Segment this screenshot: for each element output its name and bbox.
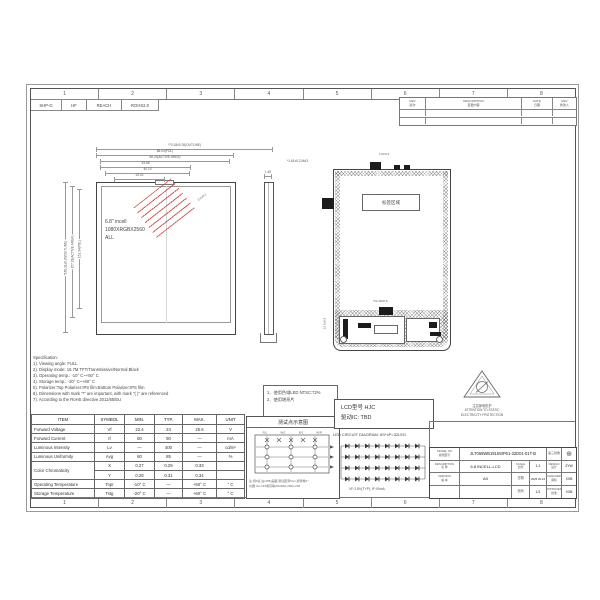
spec-item: Operating Temperature [32, 480, 95, 489]
panel-description-text: 6.8" incell 1080XRGBX2560 ALL [105, 218, 145, 242]
test-point-title: 测试点示意图 [247, 417, 339, 428]
spec-cell: 0.28 [125, 470, 155, 479]
revision-empty-cell [400, 118, 426, 124]
approved-label-cn: 批准 [551, 492, 557, 495]
spec-cell: Y [95, 470, 125, 479]
spec-cell: — [183, 452, 217, 461]
compliance-table: SHP-GHFREACHROHS2.0 [31, 99, 159, 111]
spec-item: Forward Current [32, 434, 95, 443]
fpc-stiffener [379, 307, 393, 315]
driver-ic-line: 驱动IC: TBD [341, 414, 433, 424]
fpc-component [429, 322, 437, 328]
side-tab [322, 198, 334, 209]
grid-ref-3: 3 [166, 89, 234, 99]
revision-empty-cell [426, 118, 522, 124]
front-view: 0.2±0.1 6.8" incell 1080XRGBX2560 ALL [96, 182, 236, 335]
esd-warning-icon [462, 369, 502, 399]
spec-cell: 0.34 [183, 470, 217, 479]
checked-value: XXB [562, 473, 576, 486]
projection-symbol-icon: ⊕ [562, 448, 576, 461]
spec-cell: Avg [95, 452, 125, 461]
svg-text:W/R: W/R [316, 431, 323, 435]
top-pad [404, 165, 410, 170]
table-row: Forward VoltageVf22.42425.6V [32, 425, 245, 434]
grid-ref-8: 8 [507, 498, 575, 508]
grid-ref-5: 5 [303, 89, 371, 99]
spec-cell: 80 [125, 434, 155, 443]
revision-header: DATE日期 [522, 98, 553, 109]
table-row: Luminous IntensityLv—400—cd/m² [32, 443, 245, 452]
revision-empty-cell [522, 110, 553, 116]
projection-angle-label: 第三视角 [547, 448, 562, 461]
dimension-label: 33.02 [135, 174, 145, 177]
usage-note-1: 1、使用色域LED NTSC:72% [267, 389, 337, 396]
table-row: Operating TemperatureTopr-10° C—+50° C° … [32, 480, 245, 489]
dimension-label: *70.18±0.20(OUTLINE) [167, 144, 202, 147]
spec-header: ITEM [32, 415, 95, 425]
compliance-reach: REACH [87, 99, 122, 111]
usage-note-2: 2、使用增亮片 [267, 396, 337, 403]
lcd-model-line: LCD型号 HJC [341, 404, 433, 414]
dimension-label: 1.0±0.3 [378, 153, 390, 156]
spec-cell: ° C [217, 480, 245, 489]
esd-text-en2: ELECTRICITY PROTECTION [451, 413, 513, 417]
dimension-line: 151.34(POL) [79, 189, 80, 309]
model-label-cn: 模组型号 [439, 454, 450, 457]
page-value: 1/1 [530, 486, 547, 499]
checked-label-cn: 审核 [551, 479, 557, 482]
spec-cell: If [95, 434, 125, 443]
spec-cell: X [95, 461, 125, 470]
panel-size-line: 6.8" incell [105, 218, 145, 226]
model-number: JLT068WB1916WP61-32D01-01T-B [460, 448, 547, 461]
spec-cell: mA [217, 434, 245, 443]
grid-ref-2: 2 [98, 498, 166, 508]
spec-item: Storage Temperature [32, 489, 95, 498]
test-point-notes: 注:测9点,白(255)画面,测试距离5cm,视场角1° 仪器:CA-310或同… [249, 479, 337, 488]
empty-cell [460, 486, 512, 499]
dimension-label: 1.45 [264, 171, 272, 174]
spec-cell: Tstg [95, 489, 125, 498]
approved-value: XXB [562, 486, 576, 499]
revision-header: REV修改人 [553, 98, 576, 109]
led-circuit-label: LED CIRCUIT DIAGRAM: 8S*4P=32LED [333, 432, 406, 437]
spec-cell: 0.31 [155, 470, 183, 479]
compliance-rohs2.0: ROHS2.0 [122, 99, 159, 111]
dimension-line: *70.18±0.20(OUTLINE) [96, 149, 273, 150]
fpc-slot [374, 325, 398, 334]
test-note-2: 仪器:CA-310或同等(MODEL),B0A-250 [249, 484, 337, 489]
alignment-hole [436, 336, 443, 343]
top-tab [370, 162, 381, 170]
usage-notes-box: 1、使用色域LED NTSC:72% 2、使用增亮片 [263, 385, 338, 417]
spec-cell: 0.33 [183, 461, 217, 470]
revision-header: DESCRIPTION变更内容 [426, 98, 522, 109]
spec-cell: 0.29 [155, 461, 183, 470]
spec-cell: 24 [155, 425, 183, 434]
alignment-hole [340, 336, 347, 343]
dimension-line: 33.02 [114, 179, 165, 180]
spec-table-grid: ITEMSYMBOLMIN.TYP.MAX.UNITForward Voltag… [31, 414, 245, 499]
spec-cell: 80 [125, 452, 155, 461]
compliance-shp-g: SHP-G [31, 99, 62, 111]
page-background: 12345678 12345678 SHP-GHFREACHROHS2.0 RE… [0, 0, 600, 600]
spec-cell [217, 470, 245, 479]
grid-ref-6: 6 [371, 498, 439, 508]
spec-cell: -20° C [125, 489, 155, 498]
grid-ref-4: 4 [234, 498, 302, 508]
revision-header-cn: 版次 [409, 104, 415, 107]
spec-header: MIN. [125, 415, 155, 425]
version-value: A0 [460, 473, 512, 486]
spec-cell: — [155, 489, 183, 498]
spec-cell: — [155, 480, 183, 489]
revision-empty-row [400, 109, 576, 117]
esd-warning: 注意静电防护 ATTENTION TO STATIC ELECTRICITY P… [451, 369, 513, 417]
grid-ref-1: 1 [31, 89, 98, 99]
revision-empty-cell [553, 110, 576, 116]
table-row: Forward CurrentIf8090—mA [32, 434, 245, 443]
dimension-line: 1.45 [264, 176, 272, 177]
lcd-info-box: LCD型号 HJC 驱动IC: TBD [334, 399, 434, 429]
panel-all-line: ALL [105, 234, 145, 242]
test-point-box: 测试点示意图 R/LW/1B/1W/R 注:测9点,白(255)画面,测试距离5… [246, 416, 340, 499]
design-label-cn: 设计 [551, 466, 557, 469]
test-point-diagram: R/LW/1B/1W/R [251, 429, 335, 482]
spec-table: ITEMSYMBOLMIN.TYP.MAX.UNITForward Voltag… [31, 414, 244, 499]
grid-ref-5: 5 [303, 498, 371, 508]
spec-cell: -10° C [125, 480, 155, 489]
dimension-label: 157.01(ACTIVE AREA) [71, 235, 74, 270]
dimension-line: 66.24(ACTIVE AREA) [100, 161, 230, 162]
design-value: ZYW [562, 461, 576, 474]
spec-cell: % [217, 452, 245, 461]
drawing-sheet: 12345678 12345678 SHP-GHFREACHROHS2.0 RE… [30, 88, 576, 508]
spec-cell: 0.27 [125, 461, 155, 470]
spec-item: Luminous Uniformity [32, 452, 95, 461]
dimension-label: 151.34(POL) [78, 239, 81, 259]
scale-value: 1:1 [530, 461, 547, 474]
fpc-component [358, 323, 371, 328]
revision-header-cn: 修改人 [560, 104, 569, 107]
back-view: 标签区域 1.0±0.3 *22.15±0.5 12.5±0.5 [333, 169, 451, 351]
dimension-label: 68.04(POL) [156, 150, 174, 153]
dimension-label: *160.11±0.20(OUTLINE) [64, 239, 67, 276]
svg-text:R/L: R/L [263, 431, 268, 435]
dimension-label: 66.24(ACTIVE AREA) [148, 156, 181, 159]
spec-cell: 85 [155, 452, 183, 461]
specification-notes: Specification:1). Viewing angle: FULL2).… [33, 355, 271, 403]
spec-cell: Topr [95, 480, 125, 489]
spec-cell: 25.6 [183, 425, 217, 434]
compliance-hf: HF [62, 99, 87, 111]
revision-empty-cell [400, 110, 426, 116]
revision-table: REV版次DESCRIPTION变更内容DATE日期REV修改人 [399, 97, 577, 126]
led-array [339, 440, 427, 486]
spec-item: Forward Voltage [32, 425, 95, 434]
spec-cell [217, 461, 245, 470]
spec-item: Luminous Intensity [32, 443, 95, 452]
spec-cell: 400 [155, 443, 183, 452]
grid-ref-7: 7 [439, 498, 507, 508]
spec-header: TYP. [155, 415, 183, 425]
date-value: 2025.04.24 [530, 473, 547, 486]
dimension-line: 157.01(ACTIVE AREA) [72, 186, 73, 318]
divider-line [429, 421, 575, 422]
page-label: 页码 [512, 486, 530, 499]
spec-note-line-7: 7). According to the RoHS directive 2011… [33, 397, 271, 403]
spec-item: Color Chromaticity [32, 461, 95, 479]
dimension-label: *22.15±0.5 [372, 300, 389, 303]
dimension-line: *160.11±0.20(OUTLINE) [65, 182, 66, 333]
date-label: 日期 [512, 473, 530, 486]
spec-cell: 90 [155, 434, 183, 443]
thickness-note: *1.61±0.2 MAX [287, 159, 308, 163]
revision-empty-cell [426, 110, 522, 116]
grid-ref-4: 4 [234, 89, 302, 99]
led-circuit-note: VF:2.8V(TYP), IF:90mA [349, 487, 385, 491]
side-view-fpc-fold [260, 333, 277, 343]
dimension-line: 40.10 [105, 173, 190, 174]
grid-ref-3: 3 [166, 498, 234, 508]
panel-resolution-line: 1080XRGBX2560 [105, 226, 145, 234]
revision-empty-cell [553, 118, 576, 124]
version-label-cn: 版 本 [441, 479, 447, 482]
spec-header: MAX. [183, 415, 217, 425]
side-view-centerline [268, 183, 269, 334]
spec-cell: cd/m² [217, 443, 245, 452]
description-value: 6.8 INCELL-LCD [460, 461, 512, 474]
revision-header-row: REV版次DESCRIPTION变更内容DATE日期REV修改人 [400, 98, 576, 109]
spec-cell: +50° C [183, 480, 217, 489]
spec-cell: Lv [95, 443, 125, 452]
spec-header: UNIT [217, 415, 245, 425]
top-pad [394, 165, 400, 170]
revision-empty-row [400, 117, 576, 125]
revision-empty-cell [522, 118, 553, 124]
side-view [264, 182, 274, 335]
description-label-cn: 名 称 [441, 466, 447, 469]
label-area-box: 标签区域 [362, 194, 420, 211]
spec-cell: V [217, 425, 245, 434]
svg-text:W/1: W/1 [280, 431, 286, 435]
spec-cell: 22.4 [125, 425, 155, 434]
dimension-label: 12.5±0.5 [323, 317, 326, 331]
dimension-label: 40.10 [143, 168, 153, 171]
revision-header: REV版次 [400, 98, 426, 109]
grid-ref-2: 2 [98, 89, 166, 99]
table-row: Luminous UniformityAvg8085—% [32, 452, 245, 461]
svg-text:B/1: B/1 [299, 431, 304, 435]
empty-cell [430, 486, 460, 499]
table-row: Color ChromaticityX0.270.290.33 [32, 461, 245, 470]
revision-header-cn: 日期 [534, 104, 540, 107]
hatch-top [335, 171, 448, 176]
scale-label-cn: 比例 [518, 466, 524, 469]
spec-cell: +60° C [183, 489, 217, 498]
spec-cell: ° C [217, 489, 245, 498]
spec-cell: — [183, 434, 217, 443]
grid-ref-1: 1 [31, 498, 98, 508]
table-row: Storage TemperatureTstg-20° C—+60° C° C [32, 489, 245, 498]
revision-header-cn: 变更内容 [467, 104, 479, 107]
title-block: MODEL NO 模组型号 JLT068WB1916WP61-32D01-01T… [429, 447, 577, 499]
spec-header: SYMBOL [95, 415, 125, 425]
spec-cell: — [125, 443, 155, 452]
spec-cell: — [183, 443, 217, 452]
dimension-label: 43.58 [141, 162, 151, 165]
spec-cell: Vf [95, 425, 125, 434]
